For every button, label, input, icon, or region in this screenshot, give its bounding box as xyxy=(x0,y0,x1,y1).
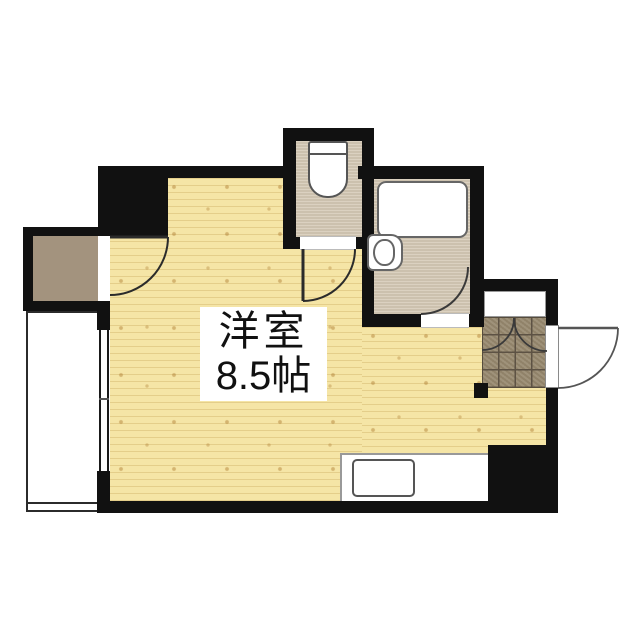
shoe-cabinet xyxy=(484,291,546,317)
toilet-door-opening xyxy=(300,236,356,250)
room-label: 洋室 8.5帖 xyxy=(200,307,327,401)
entry-door-opening xyxy=(545,325,559,388)
bathroom-door-opening xyxy=(421,313,469,328)
room-name-text: 洋室 xyxy=(219,309,309,354)
wall-entrance-top xyxy=(470,279,558,291)
entry-door-swing xyxy=(558,328,618,388)
window-center-tick xyxy=(99,398,109,400)
wall-left xyxy=(23,227,33,311)
toilet-bowl xyxy=(308,153,348,198)
bathtub xyxy=(377,181,468,238)
room-size-text: 8.5帖 xyxy=(216,354,312,399)
balcony-inner-edge xyxy=(26,502,106,504)
washbasin-bowl xyxy=(373,239,395,266)
wall-closet-bottom xyxy=(23,301,110,311)
wall-window-stub-bottom xyxy=(97,471,110,513)
wall-bath-right xyxy=(470,166,484,327)
wall-closet-top xyxy=(23,227,100,236)
floorplan: 洋室 8.5帖 xyxy=(0,0,640,640)
window xyxy=(99,330,109,471)
wall-bath-top xyxy=(358,166,484,179)
kitchen-sink xyxy=(352,459,415,497)
closet-floor xyxy=(33,236,98,301)
wall-tile-stub xyxy=(474,383,488,398)
wall-toilet-top xyxy=(283,128,374,141)
wall-right-upper xyxy=(546,279,558,325)
wall-toilet-bath-shared xyxy=(362,128,374,327)
wall-bottom xyxy=(97,501,488,513)
entrance-tile xyxy=(482,317,547,388)
wall-top xyxy=(98,166,285,178)
wall-toilet-left xyxy=(283,128,296,249)
wall-right-lower xyxy=(546,388,558,445)
balcony xyxy=(26,311,106,512)
closet-door-opening xyxy=(98,236,110,301)
wall-corner-block xyxy=(488,445,558,513)
wall-window-stub-top xyxy=(97,311,110,330)
